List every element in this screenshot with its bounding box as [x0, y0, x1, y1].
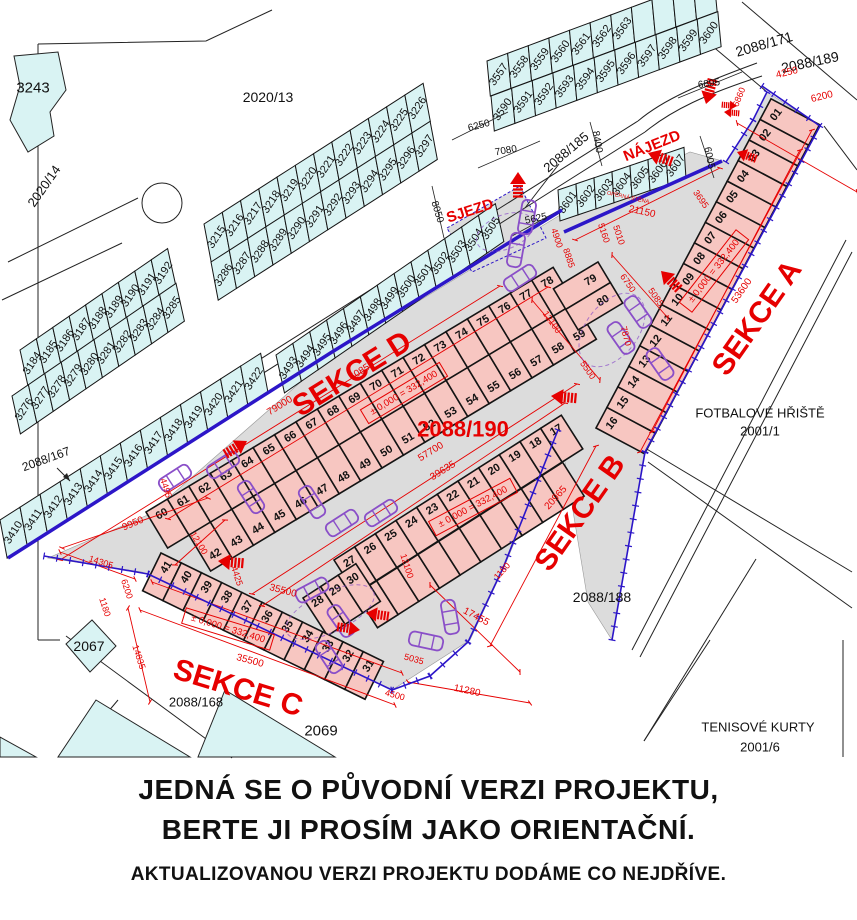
disclaimer-line-3: AKTUALIZOVANOU VERZI PROJEKTU DODÁME CO … [0, 864, 857, 886]
svg-text:2069: 2069 [304, 723, 337, 740]
disclaimer-line-1: JEDNÁ SE O PŮVODNÍ VERZI PROJEKTU, [0, 770, 857, 810]
svg-text:2001/1: 2001/1 [740, 424, 780, 439]
site-plan-page: 3184318531863187318831893190319131923276… [0, 0, 857, 920]
label-2067: 2067 [73, 638, 104, 654]
svg-text:2067: 2067 [73, 638, 104, 654]
svg-text:2020/13: 2020/13 [243, 89, 294, 105]
svg-text:2088/190: 2088/190 [417, 417, 509, 442]
label-2001/6: 2001/6 [740, 740, 780, 755]
svg-text:2001/6: 2001/6 [740, 740, 780, 755]
svg-text:FOTBALOVÉ HŘIŠTĚ: FOTBALOVÉ HŘIŠTĚ [695, 406, 825, 421]
label-2088/188: 2088/188 [573, 589, 632, 605]
svg-text:2088/188: 2088/188 [573, 589, 632, 605]
label-3243: 3243 [16, 80, 49, 97]
label-2020/13: 2020/13 [243, 89, 294, 105]
svg-text:3243: 3243 [16, 80, 49, 97]
label-2001/1: 2001/1 [740, 424, 780, 439]
disclaimer-line-2: BERTE JI PROSÍM JAKO ORIENTAČNÍ. [0, 810, 857, 850]
disclaimer-block: JEDNÁ SE O PŮVODNÍ VERZI PROJEKTU, BERTE… [0, 770, 857, 886]
label-TENISOVÉ KURTY: TENISOVÉ KURTY [701, 720, 815, 735]
label-FOTBALOVÉ HŘIŠTĚ: FOTBALOVÉ HŘIŠTĚ [695, 406, 825, 421]
red-label-2088/190: 2088/190 [417, 417, 509, 442]
label-2069: 2069 [304, 723, 337, 740]
site-plan-drawing: 3184318531863187318831893190319131923276… [0, 0, 857, 770]
svg-text:TENISOVÉ KURTY: TENISOVÉ KURTY [701, 720, 815, 735]
